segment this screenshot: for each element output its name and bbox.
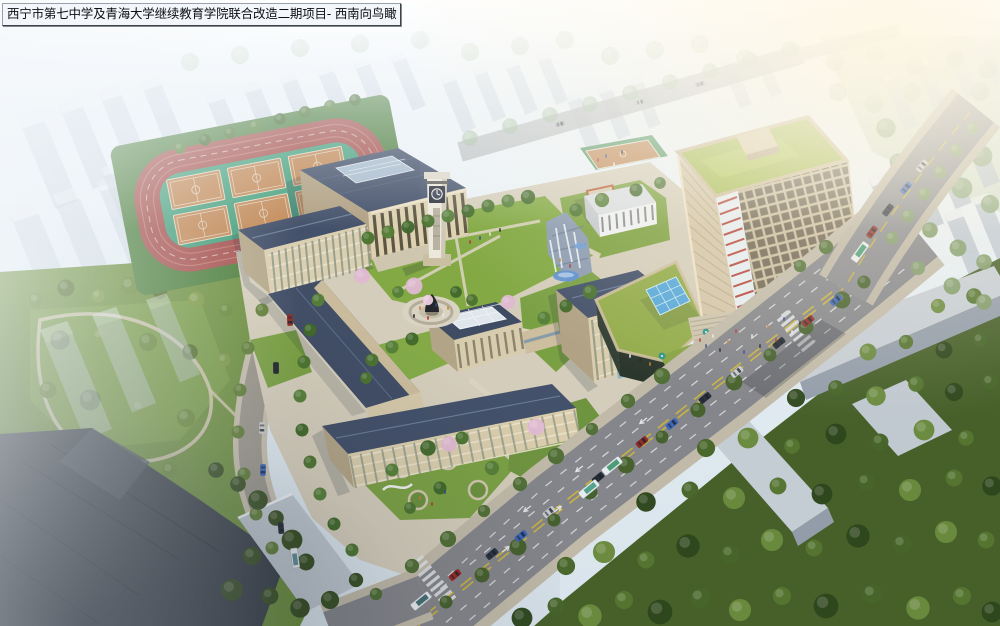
title-text: 西宁市第七中学及青海大学继续教育学院联合改造二期项目- 西南向鸟瞰 <box>7 6 396 21</box>
title-caption: 西宁市第七中学及青海大学继续教育学院联合改造二期项目- 西南向鸟瞰 <box>2 3 401 26</box>
rendering-viewport: 西宁市第七中学及青海大学继续教育学院联合改造二期项目- 西南向鸟瞰 <box>0 0 1000 626</box>
southwest-vignette <box>0 280 560 626</box>
aerial-rendering <box>0 0 1000 626</box>
